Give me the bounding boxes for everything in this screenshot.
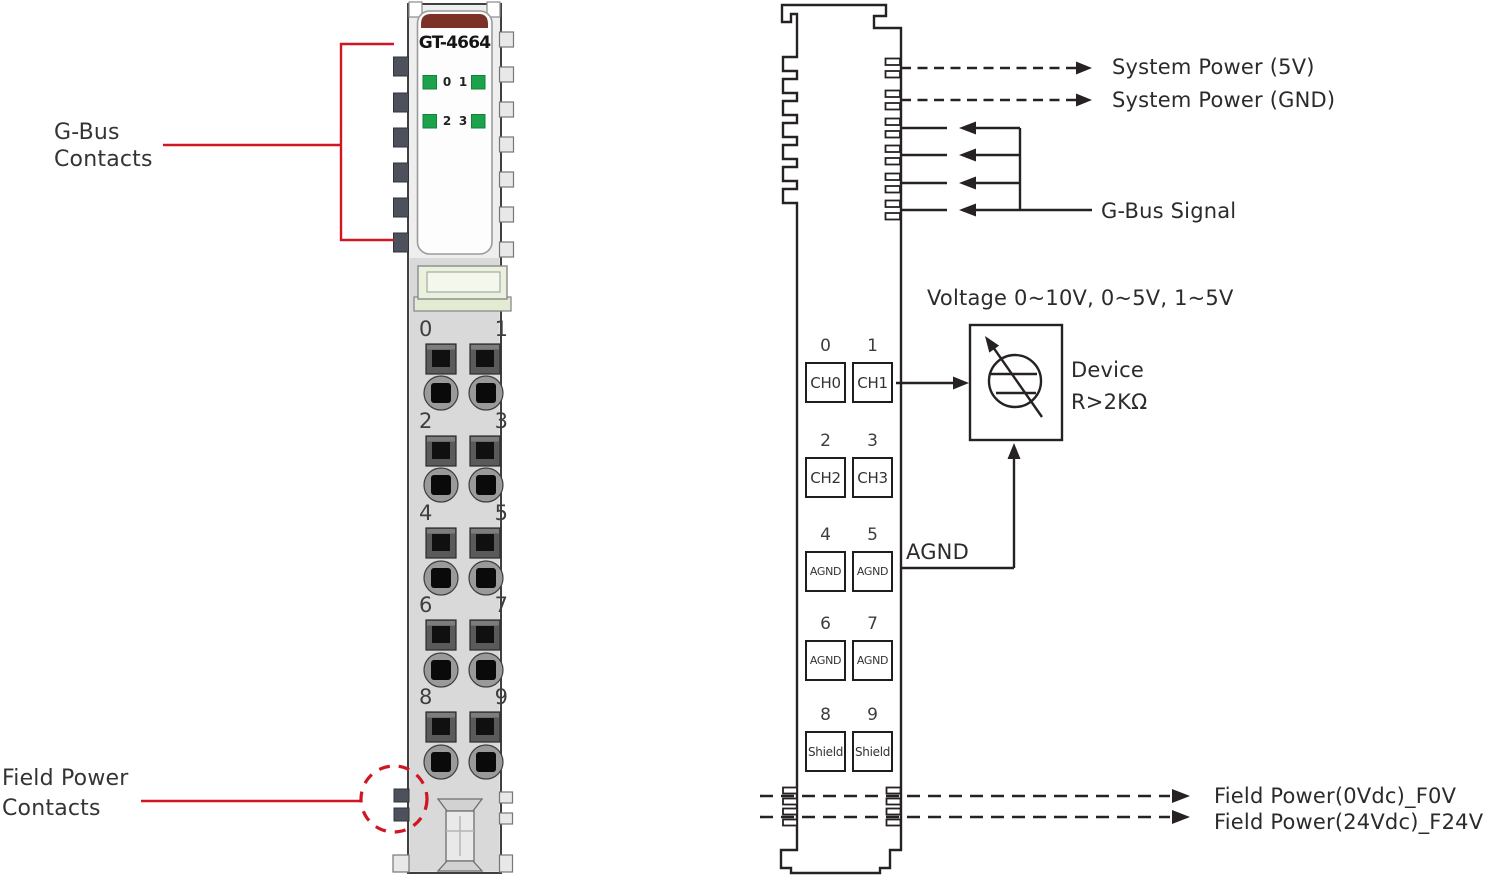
- right-foot: [500, 855, 513, 872]
- terminal-number-3: 3: [484, 410, 508, 432]
- led-label-1: 1: [456, 75, 470, 89]
- terminal-box-ch3: CH3: [852, 457, 893, 498]
- module-model-label: GT-4664: [417, 33, 492, 53]
- line-art: [0, 0, 1500, 879]
- field-power-tabs: [394, 789, 409, 821]
- voltage-range-label: Voltage 0~10V, 0~5V, 1~5V: [927, 286, 1234, 311]
- terminal-box-ch2: CH2: [805, 457, 846, 498]
- field-edge-tabs: [783, 788, 901, 826]
- gbus-bracket: [341, 44, 394, 240]
- terminal-box-agnd-5: AGND: [852, 551, 893, 592]
- terminal-box-shield-8: Shield: [805, 731, 846, 772]
- model-band: [421, 14, 488, 28]
- terminal-box-ch1: CH1: [852, 362, 893, 403]
- terminal-number-8: 8: [419, 686, 443, 708]
- led-label-0: 0: [440, 75, 454, 89]
- terminal-number-6: 6: [419, 594, 443, 616]
- field-power-label-line1: Field Power: [2, 766, 129, 792]
- device-symbol: [970, 325, 1062, 440]
- pin-number-6: 6: [805, 614, 846, 634]
- device-label: Device: [1071, 358, 1144, 383]
- left-foot: [393, 855, 409, 872]
- pin-number-7: 7: [852, 614, 893, 634]
- arrowhead-gnd: [1076, 94, 1092, 107]
- terminal-number-2: 2: [419, 410, 443, 432]
- ejector-latch: [414, 266, 511, 311]
- pin-number-0: 0: [805, 336, 846, 356]
- ch1-arrowhead: [953, 377, 969, 390]
- terminal-box-agnd-4: AGND: [805, 551, 846, 592]
- gbus-contacts-label-line2: Contacts: [54, 147, 153, 173]
- field-power-0v-label: Field Power(0Vdc)_F0V: [1214, 784, 1456, 809]
- led-3: [472, 115, 486, 129]
- terminal-number-7: 7: [484, 594, 508, 616]
- field-power-wires: [760, 796, 1170, 817]
- terminal-number-5: 5: [484, 502, 508, 524]
- pin-number-9: 9: [852, 705, 893, 725]
- agnd-arrowhead: [1008, 443, 1021, 459]
- field-power-24v-label: Field Power(24Vdc)_F24V: [1214, 810, 1483, 835]
- led-label-2: 2: [440, 114, 454, 128]
- pin-number-8: 8: [805, 705, 846, 725]
- terminal-box-agnd-6: AGND: [805, 640, 846, 681]
- terminal-number-9: 9: [484, 686, 508, 708]
- terminal-box-shield-9: Shield: [852, 731, 893, 772]
- pin-number-1: 1: [852, 336, 893, 356]
- led-label-3: 3: [456, 114, 470, 128]
- gbus-arrowheads: [959, 122, 976, 217]
- led-0: [423, 76, 437, 90]
- system-power-5v-label: System Power (5V): [1112, 55, 1315, 80]
- device-resistance-label: R>2KΩ: [1071, 390, 1147, 415]
- left-module: [393, 2, 514, 873]
- field-power-label-line2: Contacts: [2, 796, 101, 822]
- gbus-contact-tabs: [394, 57, 409, 252]
- terminal-box-agnd-7: AGND: [852, 640, 893, 681]
- terminal-box-ch0: CH0: [805, 362, 846, 403]
- arrowhead-5v: [1076, 62, 1092, 75]
- diagram-canvas: G-Bus Contacts Field Power Contacts GT-4…: [0, 0, 1500, 879]
- pin-number-2: 2: [805, 431, 846, 451]
- red-annotations: [141, 44, 427, 832]
- terminal-number-4: 4: [419, 502, 443, 524]
- gbus-signal-label: G-Bus Signal: [1101, 199, 1236, 224]
- pin-number-4: 4: [805, 525, 846, 545]
- right-edge-tabs: [886, 59, 901, 220]
- agnd-label: AGND: [906, 540, 969, 565]
- terminal-number-1: 1: [484, 318, 508, 340]
- terminal-number-0: 0: [419, 318, 443, 340]
- led-2: [423, 115, 437, 129]
- system-power-wires: [901, 68, 1076, 100]
- pin-number-3: 3: [852, 431, 893, 451]
- pin-number-5: 5: [852, 525, 893, 545]
- gbus-contacts-label-line1: G-Bus: [54, 120, 120, 146]
- arrowhead-f0v: [1172, 789, 1190, 803]
- arrowhead-f24v: [1172, 810, 1190, 824]
- gbus-wires: [901, 128, 1092, 210]
- led-1: [472, 76, 486, 90]
- system-power-gnd-label: System Power (GND): [1112, 88, 1335, 113]
